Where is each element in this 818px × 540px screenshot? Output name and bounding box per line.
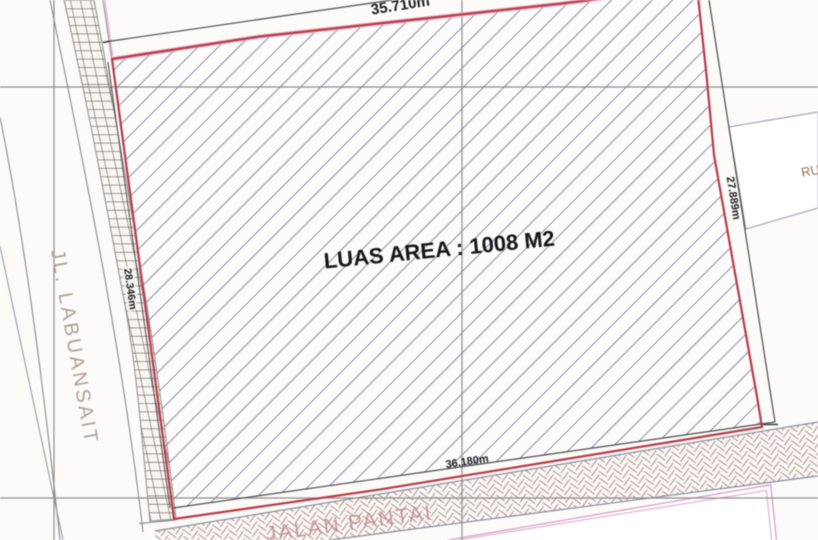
svg-text:RU: RU [800,162,818,180]
